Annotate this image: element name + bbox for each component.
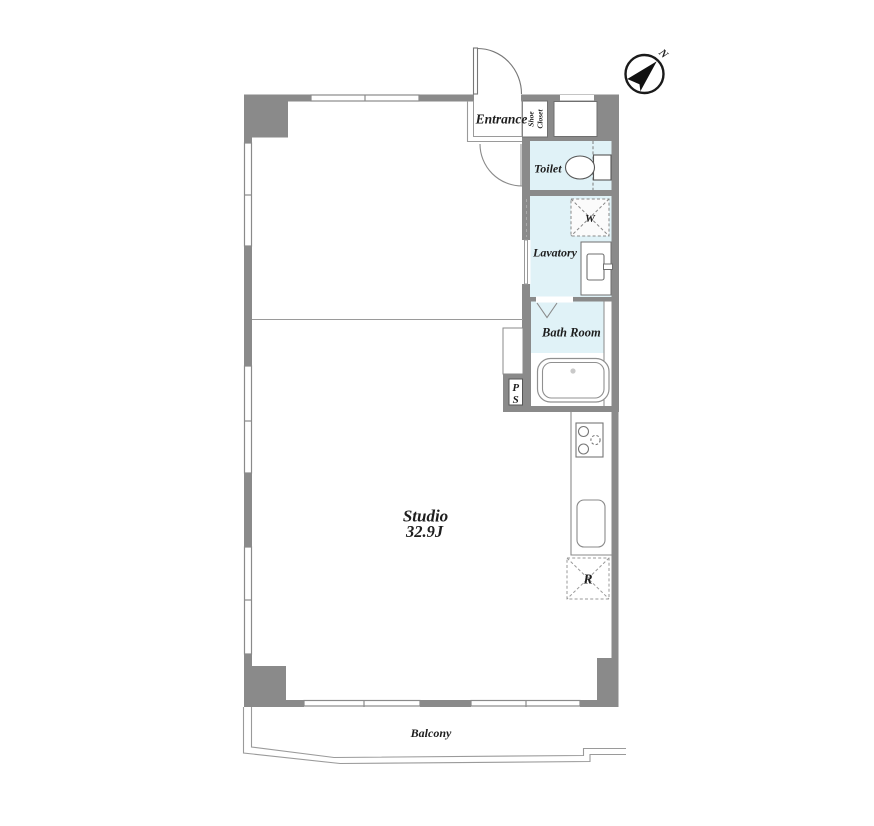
svg-text:W: W <box>585 213 596 225</box>
svg-text:P: P <box>512 382 519 394</box>
svg-text:Lavatory: Lavatory <box>532 246 578 260</box>
svg-text:Closet: Closet <box>536 109 545 129</box>
svg-text:Shoe: Shoe <box>527 111 536 127</box>
svg-text:Balcony: Balcony <box>410 726 452 740</box>
svg-text:Toilet: Toilet <box>534 162 562 176</box>
svg-text:Bath Room: Bath Room <box>541 326 601 340</box>
svg-text:32.9J: 32.9J <box>405 522 444 541</box>
svg-text:Entrance: Entrance <box>475 112 528 127</box>
svg-text:R: R <box>582 572 592 587</box>
svg-text:S: S <box>513 394 519 406</box>
